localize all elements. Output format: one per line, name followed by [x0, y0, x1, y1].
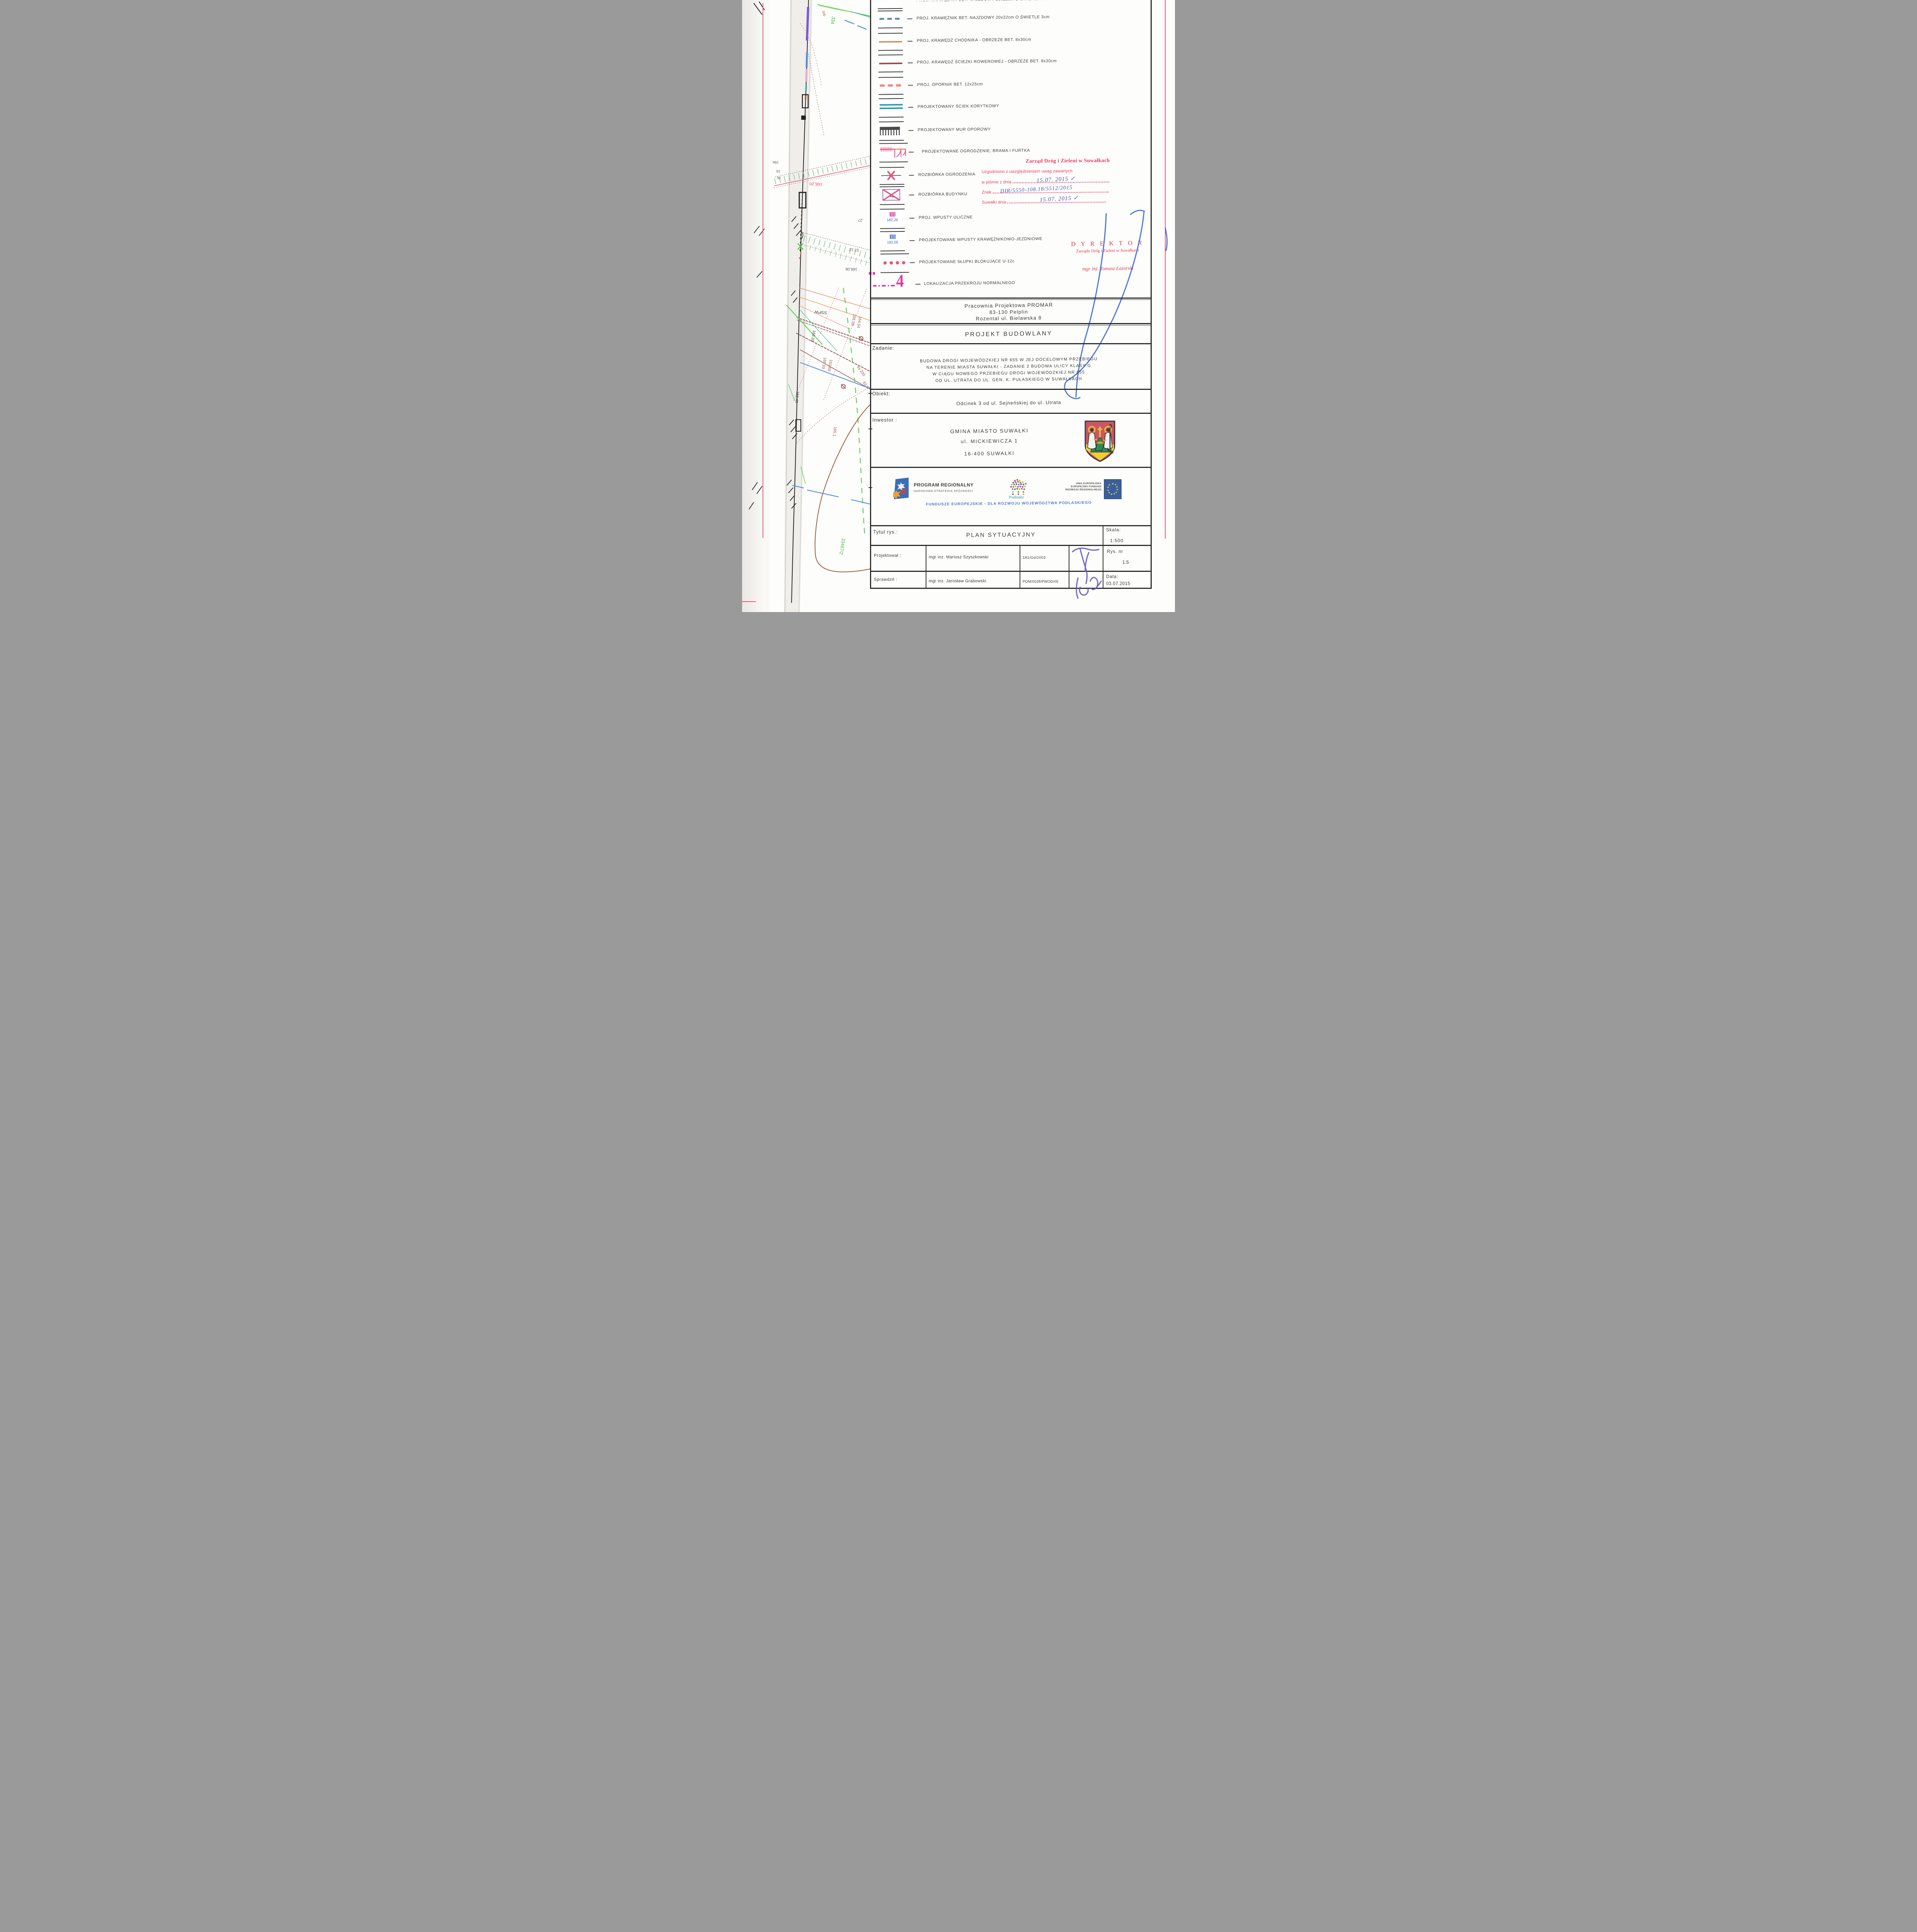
section-location-icon: 4 [872, 273, 915, 295]
pen-signature-violet [1069, 543, 1105, 604]
designed-label: Projektował : [874, 553, 901, 558]
legend-label: PROJEKTOWANE SŁUPKI BLOKUJĄCE U-12c [919, 259, 1015, 265]
program-regionalny-title: PROGRAM REGIONALNY [914, 482, 974, 488]
map-label: 166.28 [850, 313, 856, 326]
date-label: Data: [1106, 575, 1119, 579]
date-value: 03.07.2015 [1106, 582, 1130, 586]
legend-swatch-rozbiorka-budynku [880, 186, 904, 205]
approval-stamp-title: Zarząd Dróg i Zieleni w Suwałkach [981, 157, 1154, 165]
map-label: 165.93 [821, 357, 827, 369]
left-margin-line [763, 3, 763, 538]
legend-label: PROJEKTOWANY ŚCIEK KORYTKOWY [918, 104, 999, 109]
program-regionalny-logo [893, 477, 910, 500]
map-label: 166 [821, 10, 827, 17]
inlet-elevation: 182,05 [880, 240, 905, 245]
eu-text-block: UNIA EUROPEJSKA EUROPEJSKI FUNDUSZ ROZWO… [1065, 482, 1102, 492]
legend-row-1: PROJ. KRAWĘŻNIK BET. NAJZDOWY 20x22cm O … [869, 6, 1149, 30]
designed-name: mgr inz. Mariusz Szyszkowski [929, 555, 989, 560]
legend-label: PROJEKTOWANE OGRODZENIE, BRAMA I FURTKA [922, 148, 1030, 154]
scale-value: 1:500 [1110, 538, 1124, 543]
legend-swatch-mur [879, 121, 904, 141]
legend-swatch-ogrodzenie [879, 143, 908, 163]
designed-cert-number: 181/Gd/2002 [1023, 556, 1046, 560]
legend-label: ROZBIÓRKA BUDYNKU [918, 192, 967, 197]
podlaskie-bison-logo: Podlaskie [1003, 476, 1034, 501]
legend-row-2: PROJ. KRAWĘDŹ CHODNIKA - OBRZEŻE BET. 8x… [870, 29, 1150, 53]
eu-line-1: UNIA EUROPEJSKA [1065, 482, 1102, 485]
section-number: 4 [896, 270, 904, 291]
approval-stamp-line2-label: w piśmie z dnia [982, 180, 1011, 185]
eu-line-3: ROZWOJU REGIONALNEGO [1065, 488, 1102, 492]
approval-stamp-line1: Uzgodniono z uwzględnieniem uwag zawarty… [982, 168, 1154, 174]
legend-row-5: PROJEKTOWANY ŚCIEK KORYTKOWY [870, 94, 1151, 119]
map-label: 16 [777, 176, 781, 180]
legend-label: PROJ. WPUSTY ULICZNE [919, 215, 973, 220]
map-label: 33487/2 [838, 538, 846, 555]
map-label: 334 [830, 16, 836, 24]
approval-stamp-line3-label: Znak [982, 190, 991, 195]
fence-gate-icon [879, 144, 908, 160]
map-label: 57.12 [849, 247, 859, 252]
legend-swatch-opornik [878, 77, 903, 95]
legend-swatch-sciezka [878, 54, 903, 73]
eu-flag [1104, 479, 1122, 499]
legend-swatch-wpusty-uliczne: 182,26 [880, 209, 905, 229]
demolition-x-icon [879, 168, 902, 183]
legend-swatch-slupki [880, 253, 909, 273]
suwalki-coat-of-arms [1084, 420, 1116, 463]
checked-cert-number: POM/0028/PWOD/05 [1023, 580, 1059, 583]
drawing-no-value: 1.5 [1122, 560, 1129, 565]
map-label: SSPW [814, 310, 827, 315]
task-section-label: Zadanie: [872, 345, 894, 351]
investor-section-label: Inwestor : [872, 417, 897, 423]
inlet-elevation: 182,26 [880, 218, 905, 223]
legend-swatch-chodnik [878, 33, 903, 51]
map-label: 166. [772, 160, 779, 164]
map-label: .27 [858, 218, 863, 222]
bottom-left-margin-stub [742, 601, 756, 602]
podlaskie-wordmark: Podlaskie [1008, 495, 1024, 500]
legend-swatch-kraweznik-6cm [878, 0, 902, 9]
map-label: 165.1 [832, 427, 837, 437]
map-label: ks 200 [856, 365, 866, 377]
map-label: 166.20 [809, 181, 822, 187]
legend-label: PROJ. KRAWĘDŹ CHODNIKA - OBRZEŻE BET. 8x… [917, 37, 1031, 43]
legend-swatch-kraweznik-3cm [878, 10, 902, 29]
legend-row-4: PROJ. OPORNIK BET. 12x25cm [870, 73, 1150, 97]
legend-swatch-rozbiorka-ogrodzenia [879, 167, 904, 185]
eu-line-2: EUROPEJSKI FUNDUSZ [1065, 485, 1102, 488]
legend-label: PROJEKTOWANY MUR OPOROWY [918, 127, 991, 133]
legend-label: PROJEKTOWANE WPUSTY KRAWĘŻNIKOWO-JEZDNIO… [919, 236, 1042, 242]
legend-swatch-wpusty-krawezn: 182,05 [880, 231, 905, 252]
inlet-grate-icon [890, 235, 895, 238]
approval-stamp-line4-label: Suwałki dnia [982, 200, 1006, 205]
legend-swatch-sciek [879, 98, 904, 118]
drawing-title-label: Tytuł rys.: [873, 529, 898, 535]
legend-label: PROJ. KRAWĘŻNIK BET. NAJZDOWY 20x22cm O … [916, 15, 1049, 21]
legend-label: LOKALIZACJA PRZEKROJU NORMALNEGO [924, 281, 1015, 286]
checked-label: Sprawdził : [874, 577, 897, 582]
legend-label: ROZBIÓRKA OGRODZENIA [918, 172, 976, 177]
map-label: 16. [775, 169, 780, 173]
map-label: 164.54 [856, 316, 862, 328]
drawing-title: PLAN SYTUACYJNY [928, 531, 1074, 539]
legend-label: PROJ. KRAWĘDŹ ŚCIEŻKI ROWEROWEJ - OBRZEŻ… [917, 59, 1057, 65]
scanned-drawing-sheet: 166334166.16.16166.20.2757.12166.06SSPW1… [742, 0, 1175, 612]
legend-label: PROJ. OPORNIK BET. 12x25cm [917, 82, 983, 87]
map-label: 166.06 [845, 267, 857, 271]
building-demolition-icon [880, 187, 903, 203]
drawing-no-label: Rys. nr [1107, 549, 1123, 554]
object-section-label: Obiekt: [872, 391, 890, 396]
checked-name: mgr inz. Jarosław Grabowski [929, 579, 986, 583]
blocking-posts-icon [880, 254, 909, 271]
legend-row-3: PROJ. KRAWĘDŹ ŚCIEŻKI ROWEROWEJ - OBRZEŻ… [870, 50, 1150, 74]
program-regionalny-subtitle: NARODOWA STRATEGIA SPÓJNOŚCI [914, 489, 973, 493]
inlet-grate-icon [890, 213, 895, 216]
scale-label: Skala: [1106, 528, 1121, 532]
legend-row-6: PROJEKTOWANY MUR OPOROWY [870, 117, 1151, 142]
